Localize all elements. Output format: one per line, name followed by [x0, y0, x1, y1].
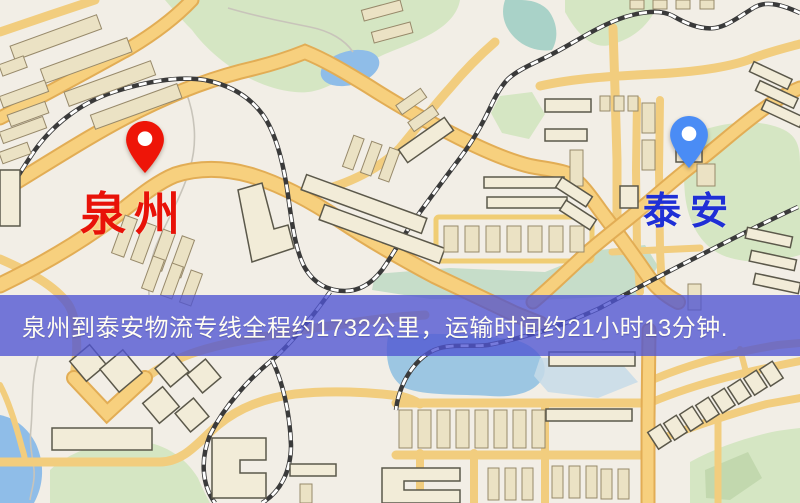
map-pin-icon [121, 121, 169, 173]
destination-label: 泰安 [643, 180, 737, 235]
origin-pin[interactable] [121, 121, 169, 173]
map-pin-icon [665, 116, 713, 168]
destination-pin[interactable] [665, 116, 713, 168]
origin-label: 泉州 [80, 178, 188, 244]
map-viewport[interactable]: 泉州 泰安 泉州到泰安物流专线全程约1732公里，运输时间约21小时13分钟. [0, 0, 800, 503]
route-info-banner: 泉州到泰安物流专线全程约1732公里，运输时间约21小时13分钟. [0, 295, 800, 356]
route-info-text: 泉州到泰安物流专线全程约1732公里，运输时间约21小时13分钟. [0, 308, 728, 343]
map-canvas[interactable] [0, 0, 800, 503]
